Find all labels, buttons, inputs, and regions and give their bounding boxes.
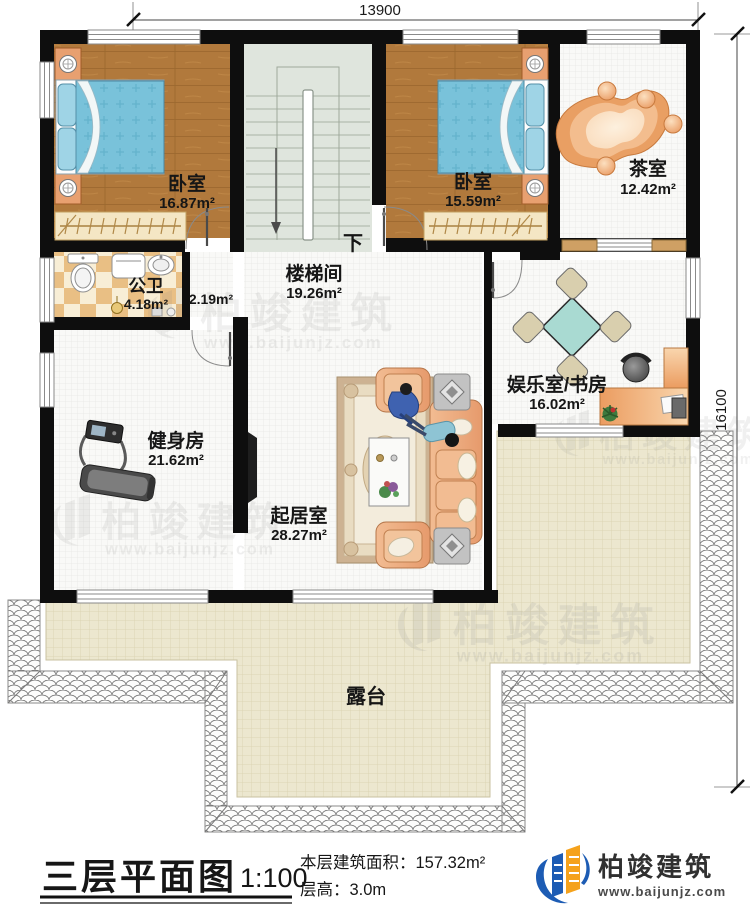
title-block: 三层平面图 1:100 本层建筑面积：157.32m² 层高：3.0m 柏竣建筑… (40, 845, 726, 903)
brand-logo-icon (536, 845, 590, 903)
room-area-gym: 21.62m² (148, 452, 204, 469)
room-area-entertainment: 16.02m² (529, 396, 585, 413)
svg-text:柏竣建筑: 柏竣建筑 (101, 501, 291, 545)
room-area-stair-hall: 19.26m² (286, 285, 342, 302)
floor-height-line: 层高：3.0m (300, 880, 386, 899)
dimension-top: 13900 (127, 2, 705, 30)
room-area-living-room: 28.27m² (271, 527, 327, 544)
dimension-top-value: 13900 (359, 2, 401, 19)
room-label-tea-room: 茶室 (629, 157, 667, 180)
svg-text:www.baijunjz.com: www.baijunjz.com (104, 541, 275, 559)
brand-url: www.baijunjz.com (597, 884, 726, 899)
window (587, 30, 660, 44)
brand-name: 柏竣建筑 (598, 852, 714, 882)
bed-symbol (438, 80, 548, 174)
coffee-table-symbol (369, 438, 409, 506)
bed-symbol (56, 80, 164, 174)
room-label-bedroom2: 卧室 (454, 170, 492, 193)
window (686, 258, 700, 318)
room-area-bedroom2: 15.59m² (445, 193, 501, 210)
stool (664, 115, 682, 133)
window (536, 424, 623, 437)
window (40, 62, 54, 118)
window (293, 590, 433, 603)
stool (637, 90, 655, 108)
room-label-bathroom: 公卫 (129, 276, 164, 296)
wardrobe-symbol (424, 212, 547, 240)
cabinet-symbol (112, 254, 145, 278)
floor-area-line: 本层建筑面积：157.32m² (300, 853, 486, 872)
bay-window (597, 239, 652, 251)
room-label-bedroom1: 卧室 (168, 172, 206, 195)
room-area-bathroom: 4.18m² (124, 296, 169, 312)
sink-symbol (148, 255, 174, 275)
svg-text:柏竣建筑: 柏竣建筑 (453, 601, 663, 650)
floor-plan-page: 柏竣建筑 www.baijunjz.com 柏竣建筑 www.baijunjz.… (0, 0, 750, 915)
bay-ledge (652, 240, 686, 251)
window (88, 30, 200, 44)
room-label-gym: 健身房 (147, 429, 204, 452)
room-label-living-room: 起居室 (269, 504, 327, 527)
room-area-tea-room: 12.42m² (620, 181, 676, 198)
room-label-entertainment: 娱乐室/书房 (507, 373, 607, 396)
dimension-right-value: 16100 (713, 389, 730, 431)
window (40, 258, 54, 322)
plan-title: 三层平面图 (42, 856, 237, 897)
room-area-bedroom1: 16.87m² (159, 195, 215, 212)
svg-text:www.baijunjz.com: www.baijunjz.com (456, 645, 644, 665)
wardrobe-symbol (55, 212, 186, 240)
stool (597, 157, 615, 175)
armchair-symbol (376, 522, 430, 568)
svg-text:www.baijunjz.com: www.baijunjz.com (602, 452, 750, 468)
room-area-corridor: 2.19m² (189, 291, 234, 307)
window (77, 590, 208, 603)
plan-scale: 1:100 (240, 863, 308, 893)
bay-ledge (562, 240, 597, 251)
stair-direction-label: 下 (343, 233, 363, 255)
room-label-stair-hall: 楼梯间 (285, 262, 342, 285)
stool (598, 82, 616, 100)
side-table-symbol (434, 374, 470, 410)
office-chair (623, 356, 649, 382)
room-label-terrace: 露台 (346, 684, 386, 708)
tv-symbol (248, 432, 257, 503)
floor-plan-svg: 柏竣建筑 www.baijunjz.com 柏竣建筑 www.baijunjz.… (0, 0, 750, 915)
window (403, 30, 518, 44)
window (40, 353, 54, 407)
side-table-symbol (434, 528, 470, 564)
